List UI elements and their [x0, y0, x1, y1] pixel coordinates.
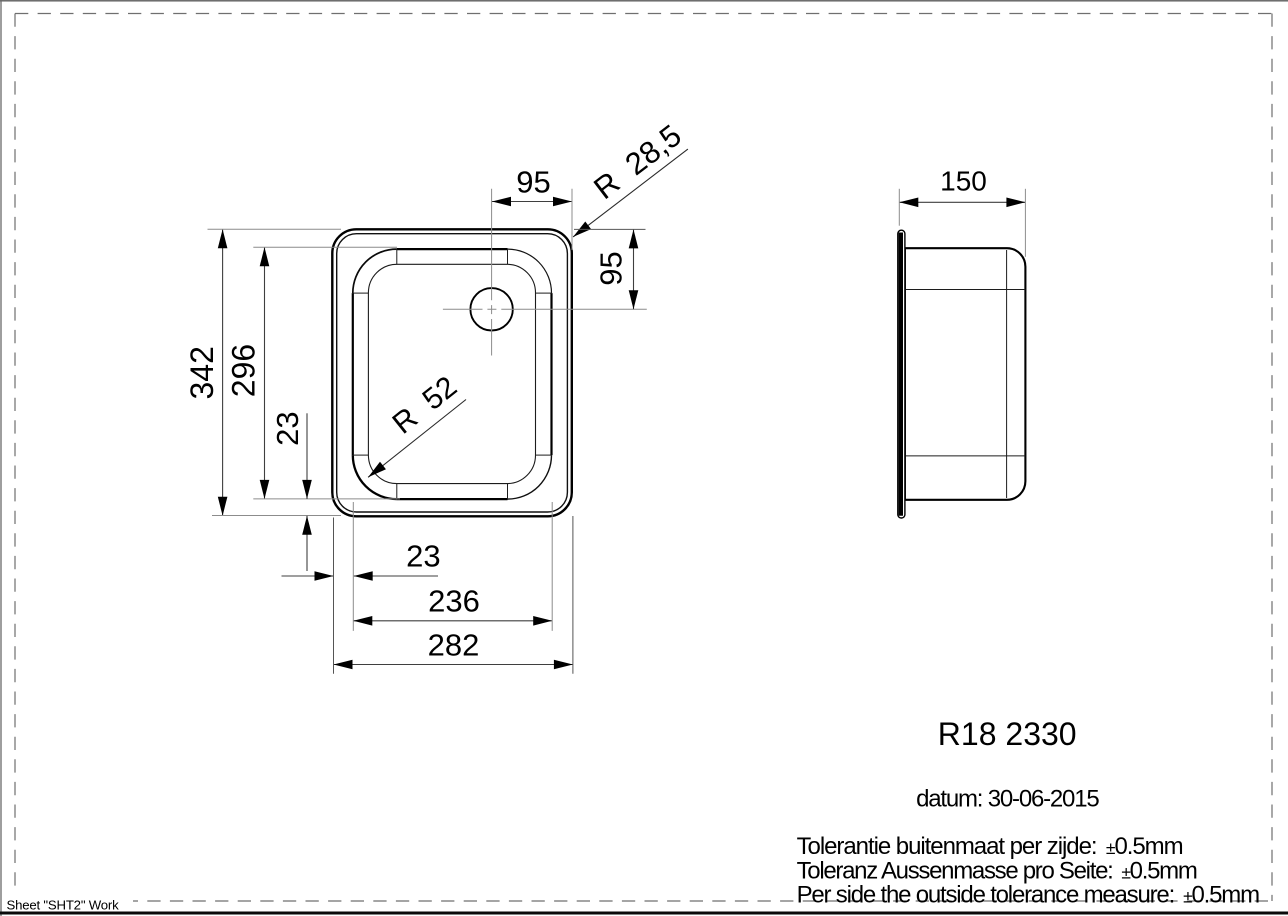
svg-text:150: 150: [940, 166, 987, 197]
svg-text:342: 342: [184, 346, 220, 399]
svg-text:datum: 30-06-2015: datum: 30-06-2015: [916, 786, 1099, 813]
svg-text:Tolerantie buitenmaat per zijd: Tolerantie buitenmaat per zijde: ±0.5mm: [797, 833, 1183, 860]
svg-text:296: 296: [226, 344, 262, 397]
svg-text:95: 95: [594, 251, 629, 285]
svg-text:R18 2330: R18 2330: [938, 716, 1077, 752]
svg-text:R 28,5: R 28,5: [587, 118, 688, 207]
svg-text:Per side the outside tolerance: Per side the outside tolerance measure: …: [797, 881, 1259, 908]
svg-text:23: 23: [270, 411, 305, 445]
svg-text:236: 236: [428, 584, 480, 619]
svg-text:23: 23: [406, 538, 440, 573]
svg-text:282: 282: [428, 628, 480, 663]
svg-text:95: 95: [516, 165, 550, 200]
svg-text:Sheet "SHT2" Work: Sheet "SHT2" Work: [7, 898, 120, 913]
